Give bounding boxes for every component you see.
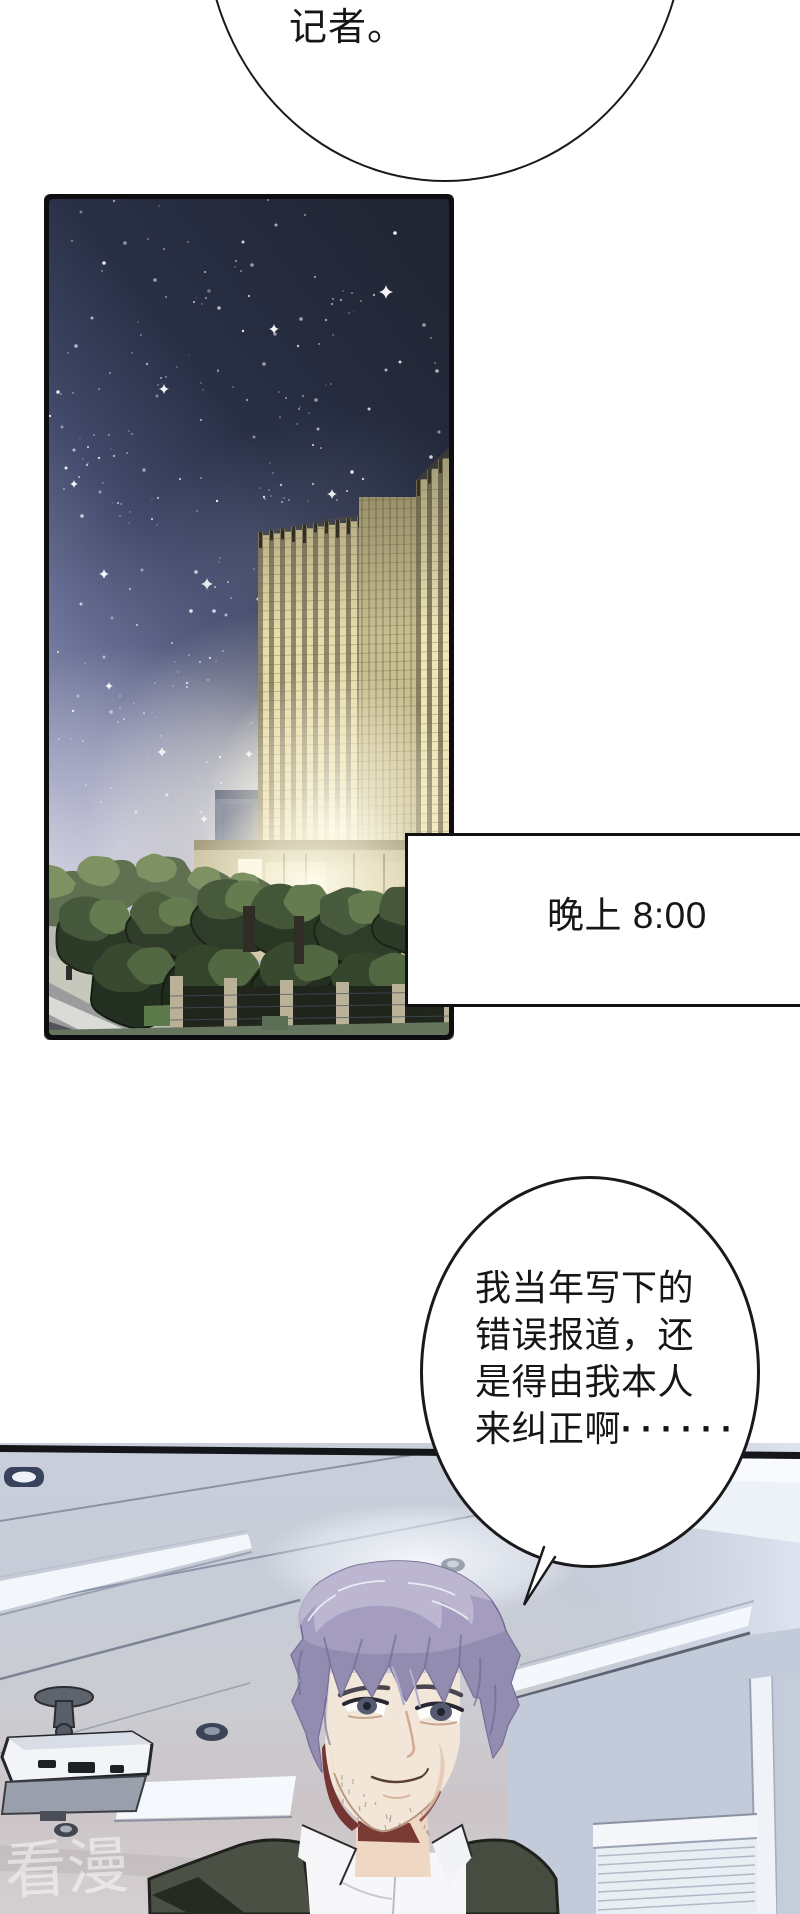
svg-text:看漫: 看漫 — [3, 1832, 130, 1907]
